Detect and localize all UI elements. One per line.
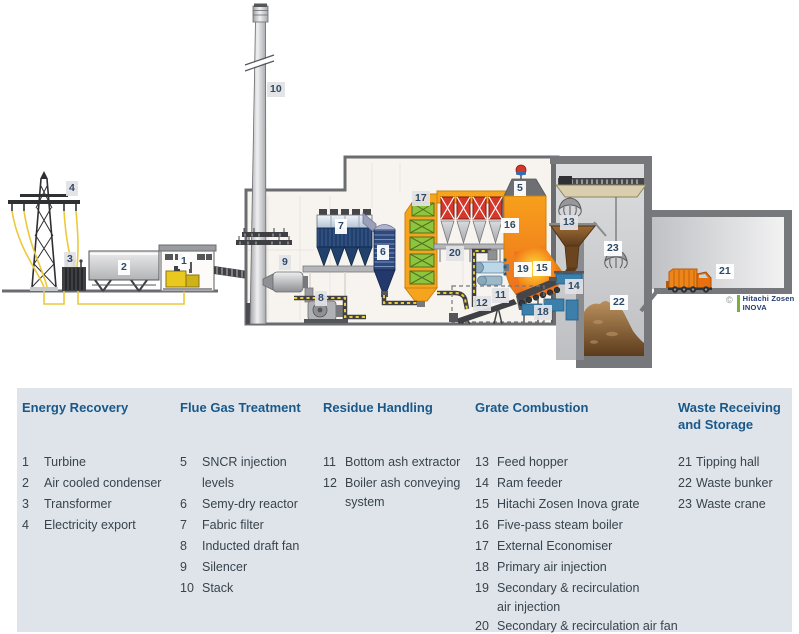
- legend-title: Grate Combustion: [475, 399, 690, 452]
- legend-title: Residue Handling: [323, 399, 471, 452]
- legend-item: 19Secondary & recirculationair injection: [475, 578, 690, 616]
- garbage-truck: [666, 269, 712, 293]
- marker-transformer: 3: [64, 252, 76, 267]
- marker-semi-dry-reactor: 6: [377, 245, 389, 260]
- marker-boiler: 16: [501, 218, 519, 233]
- legend-title: Flue Gas Treatment: [180, 399, 320, 452]
- legend-item: 22Waste bunker: [678, 473, 792, 494]
- external-economiser: [405, 194, 437, 307]
- legend-item: 21Tipping hall: [678, 452, 792, 473]
- crane-beam: [556, 185, 646, 197]
- legend-item: 12Boiler ash conveyingsystem: [323, 473, 471, 511]
- marker-silencer: 9: [279, 255, 291, 270]
- marker-stack: 10: [267, 82, 285, 97]
- legend-item: 8Inducted draft fan: [180, 536, 320, 557]
- waste-to-energy-plant-infographic: 1 2 3 4 5 6 7 8 9 10 11 12 13 14 15 16 1…: [0, 0, 799, 634]
- legend-item: 23Waste crane: [678, 494, 792, 515]
- marker-id-fan: 8: [315, 291, 327, 306]
- legend-item: 16Five-pass steam boiler: [475, 515, 690, 536]
- marker-ram-feeder: 14: [565, 279, 583, 294]
- marker-condenser: 2: [118, 260, 130, 275]
- marker-waste-bunker: 22: [610, 295, 628, 310]
- plant-diagram: [0, 0, 799, 385]
- legend-item: 20Secondary & recirculation air fan: [475, 616, 690, 634]
- logo-green-bar: [737, 295, 740, 312]
- marker-primary-air: 18: [534, 305, 552, 320]
- marker-turbine: 1: [178, 254, 190, 269]
- marker-fabric-filter: 7: [335, 219, 347, 234]
- legend-item: 13Feed hopper: [475, 452, 690, 473]
- legend-item: 6Semy-dry reactor: [180, 494, 320, 515]
- legend-item: 10Stack: [180, 578, 320, 599]
- legend-column-energy-recovery: Energy Recovery 1Turbine 2Air cooled con…: [22, 399, 167, 536]
- marker-feed-hopper: 13: [560, 215, 578, 230]
- marker-electricity-export: 4: [66, 181, 78, 196]
- legend-title: Energy Recovery: [22, 399, 167, 452]
- marker-economiser: 17: [412, 191, 430, 206]
- legend-item: 7Fabric filter: [180, 515, 320, 536]
- marker-sncr: 5: [514, 181, 526, 196]
- legend-column-waste-receiving: Waste Receiving and Storage 21Tipping ha…: [678, 399, 792, 515]
- legend-column-residue: Residue Handling 11Bottom ash extractor …: [323, 399, 471, 511]
- legend-item: 18Primary air injection: [475, 557, 690, 578]
- marker-waste-crane: 23: [604, 241, 622, 256]
- brand-logo: © Hitachi Zosen INOVA: [726, 295, 794, 312]
- marker-secondary-air: 19: [514, 262, 532, 277]
- legend-item: 3Transformer: [22, 494, 167, 515]
- marker-bottom-ash: 11: [492, 288, 509, 303]
- legend-column-grate-combustion: Grate Combustion 13Feed hopper 14Ram fee…: [475, 399, 690, 634]
- export-cable-underground: [44, 291, 64, 304]
- legend-item: 17External Economiser: [475, 536, 690, 557]
- legend-item: 11Bottom ash extractor: [323, 452, 471, 473]
- marker-grate: 15: [533, 261, 551, 276]
- legend-item: 5SNCR injection levels: [180, 452, 320, 494]
- legend-column-flue-gas: Flue Gas Treatment 5SNCR injection level…: [180, 399, 320, 599]
- legend-title: Waste Receiving and Storage: [678, 399, 792, 452]
- crane-trolley: [559, 176, 572, 185]
- marker-tipping-hall: 21: [716, 264, 734, 279]
- energy-recovery-scene: [2, 171, 248, 304]
- legend-item: 14Ram feeder: [475, 473, 690, 494]
- legend-item: 2Air cooled condenser: [22, 473, 167, 494]
- copyright-mark: ©: [726, 295, 733, 305]
- marker-boiler-ash: 12: [473, 296, 491, 311]
- marker-recirc-fan: 20: [446, 246, 464, 261]
- legend-item: 9Silencer: [180, 557, 320, 578]
- secondary-air-nozzles: [503, 258, 506, 275]
- legend-item: 15Hitachi Zosen Inova grate: [475, 494, 690, 515]
- conveyor-bridge: [214, 266, 248, 279]
- logo-line2: INOVA: [743, 304, 795, 313]
- legend-item: 4Electricity export: [22, 515, 167, 536]
- legend-panel: Energy Recovery 1Turbine 2Air cooled con…: [17, 388, 792, 632]
- legend-item: 1Turbine: [22, 452, 167, 473]
